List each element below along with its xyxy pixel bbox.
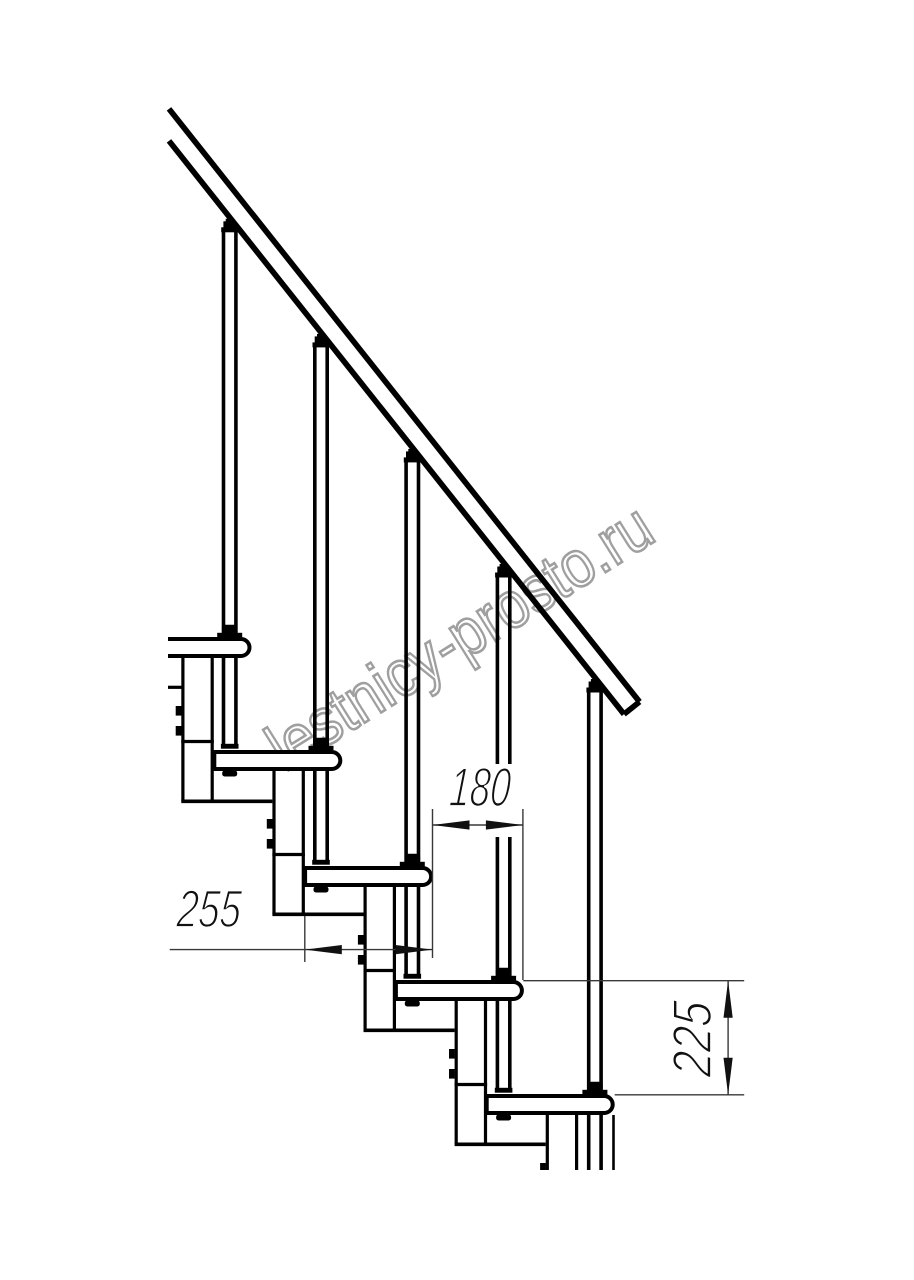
svg-text:180: 180 [448,756,514,818]
svg-text:225: 225 [661,999,723,1079]
svg-text:255: 255 [174,880,243,939]
